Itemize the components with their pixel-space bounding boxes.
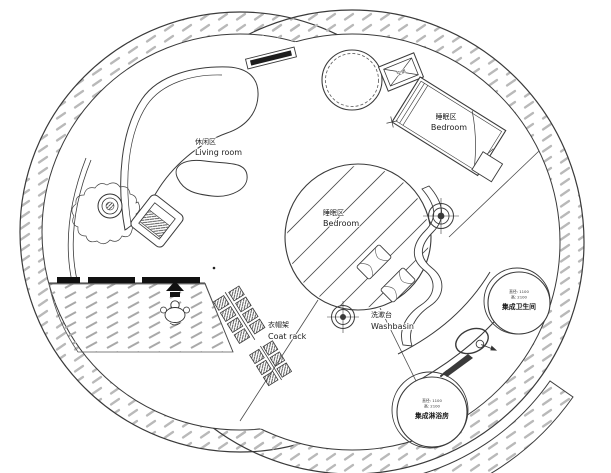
center-bedroom-label-zh: 睡眠区	[323, 209, 344, 217]
shower-pod-spec2: 高: 2100	[424, 404, 441, 409]
upper-bedroom-label-en: Bedroom	[431, 123, 467, 132]
reference-dot	[213, 267, 216, 270]
shower-pod: 直径: 1100 高: 2100 集成淋浴房	[392, 372, 468, 448]
washbasin-label-zh: 洗漱台	[371, 310, 392, 319]
coat-rack-label-zh: 衣帽架	[268, 320, 289, 329]
living-room-label-zh: 休闲区	[195, 137, 216, 146]
coat-rack-label-en: Coat rack	[268, 332, 307, 341]
corridor-wall-segment	[57, 277, 80, 283]
bathroom-pod-spec2: 高: 2100	[511, 295, 528, 300]
washbasin-label-en: Washbasin	[371, 322, 414, 331]
corridor-floor	[49, 284, 233, 352]
center-bedroom-label-en: Bedroom	[323, 219, 359, 228]
living-room-label-en: Living room	[195, 148, 242, 157]
shower-pod-name: 集成淋浴房	[414, 411, 449, 420]
bathroom-pod-spec1: 直径: 1100	[509, 289, 529, 294]
round-table	[322, 50, 382, 110]
bathroom-pod: 直径: 1100 高: 2100 集成卫生间	[484, 268, 550, 334]
entry-corridor	[49, 277, 233, 352]
corridor-wall-segment	[142, 277, 200, 283]
floor-plan-drawing: 空调	[0, 0, 611, 473]
upper-bedroom-label-zh: 睡眠区	[436, 113, 457, 121]
corridor-wall-segment	[88, 277, 135, 283]
shower-pod-spec1: 直径: 1100	[422, 398, 442, 403]
bathroom-pod-name: 集成卫生间	[501, 302, 536, 311]
floor-plan: 空调	[0, 0, 611, 473]
